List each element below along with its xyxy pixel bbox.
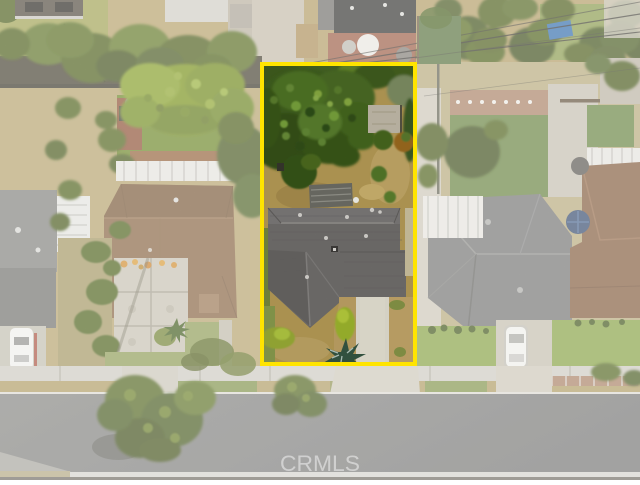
svg-text:CRMLS: CRMLS [280, 451, 360, 476]
